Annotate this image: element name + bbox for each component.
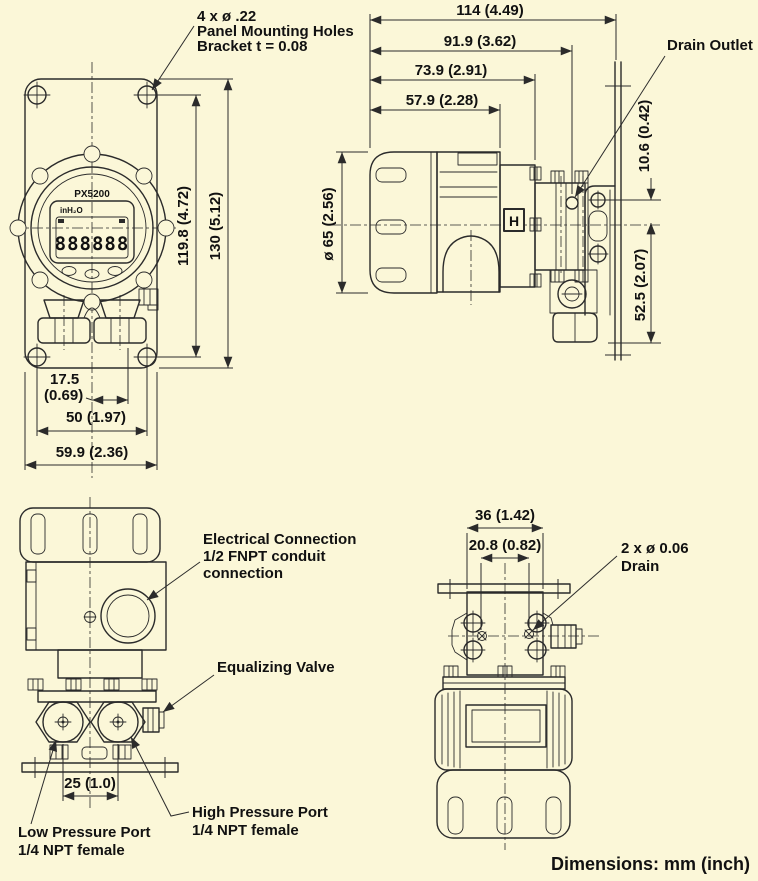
high-pressure-label-line-2: 1/4 NPT female <box>192 822 299 839</box>
equalizing-valve-label: Equalizing Valve <box>217 659 335 676</box>
drain-outlet-label: Drain Outlet <box>667 37 753 54</box>
drain-label-line-2: Drain <box>621 558 659 575</box>
low-pressure-label-line-1: Low Pressure Port <box>18 824 151 841</box>
electrical-label-line-3: connection <box>203 565 283 582</box>
dim-overall-length-label: 114 (4.49) <box>456 2 524 19</box>
drain-label-line-1: 2 x ø 0.06 <box>621 540 689 557</box>
lcd-digits: 888888 <box>55 233 130 255</box>
dim-overall-height-label: 130 (5.12) <box>207 192 224 260</box>
dim-hole-height-label: 119.8 (4.72) <box>175 186 192 266</box>
lcd-flag-right <box>119 219 125 223</box>
dim-hole-spacing-label: 50 (1.97) <box>66 409 126 426</box>
electrical-label-line-2: 1/2 FNPT conduit <box>203 548 326 565</box>
dim-to-drain-label: 91.9 (3.62) <box>444 33 517 50</box>
lcd-flag-left <box>58 219 64 223</box>
dim-to-terminal-label: 73.9 (2.91) <box>415 62 488 79</box>
unit-label: inH₂O <box>60 206 83 215</box>
transmitter-dimension-drawing: PX5200 inH₂O 888888 <box>0 0 758 881</box>
dimensions-unit-note: Dimensions: mm (inch) <box>551 854 750 874</box>
dim-port-spacing-label: 25 (1.0) <box>64 775 116 792</box>
low-pressure-label-line-2: 1/4 NPT female <box>18 842 125 859</box>
note-line-3: Bracket t = 0.08 <box>197 38 308 55</box>
high-side-marker-label: H <box>509 213 519 229</box>
dim-hole-offset-label: 10.6 (0.42) <box>636 100 653 173</box>
dim-port-offset-label-mm: 17.5 <box>50 371 79 388</box>
model-label: PX5200 <box>74 189 110 200</box>
dim-port-drop-label: 52.5 (2.07) <box>632 249 649 322</box>
dim-cover-diameter-label: ø 65 (2.56) <box>320 187 337 260</box>
dim-bracket-width-label: 36 (1.42) <box>475 507 535 524</box>
dim-to-body-label: 57.9 (2.28) <box>406 92 479 109</box>
dim-drain-spacing-label: 20.8 (0.82) <box>469 537 542 554</box>
dim-overall-width-label: 59.9 (2.36) <box>56 444 129 461</box>
high-pressure-label-line-1: High Pressure Port <box>192 804 328 821</box>
dim-port-offset-label-inch: (0.69) <box>44 387 83 404</box>
electrical-label-line-1: Electrical Connection <box>203 531 356 548</box>
